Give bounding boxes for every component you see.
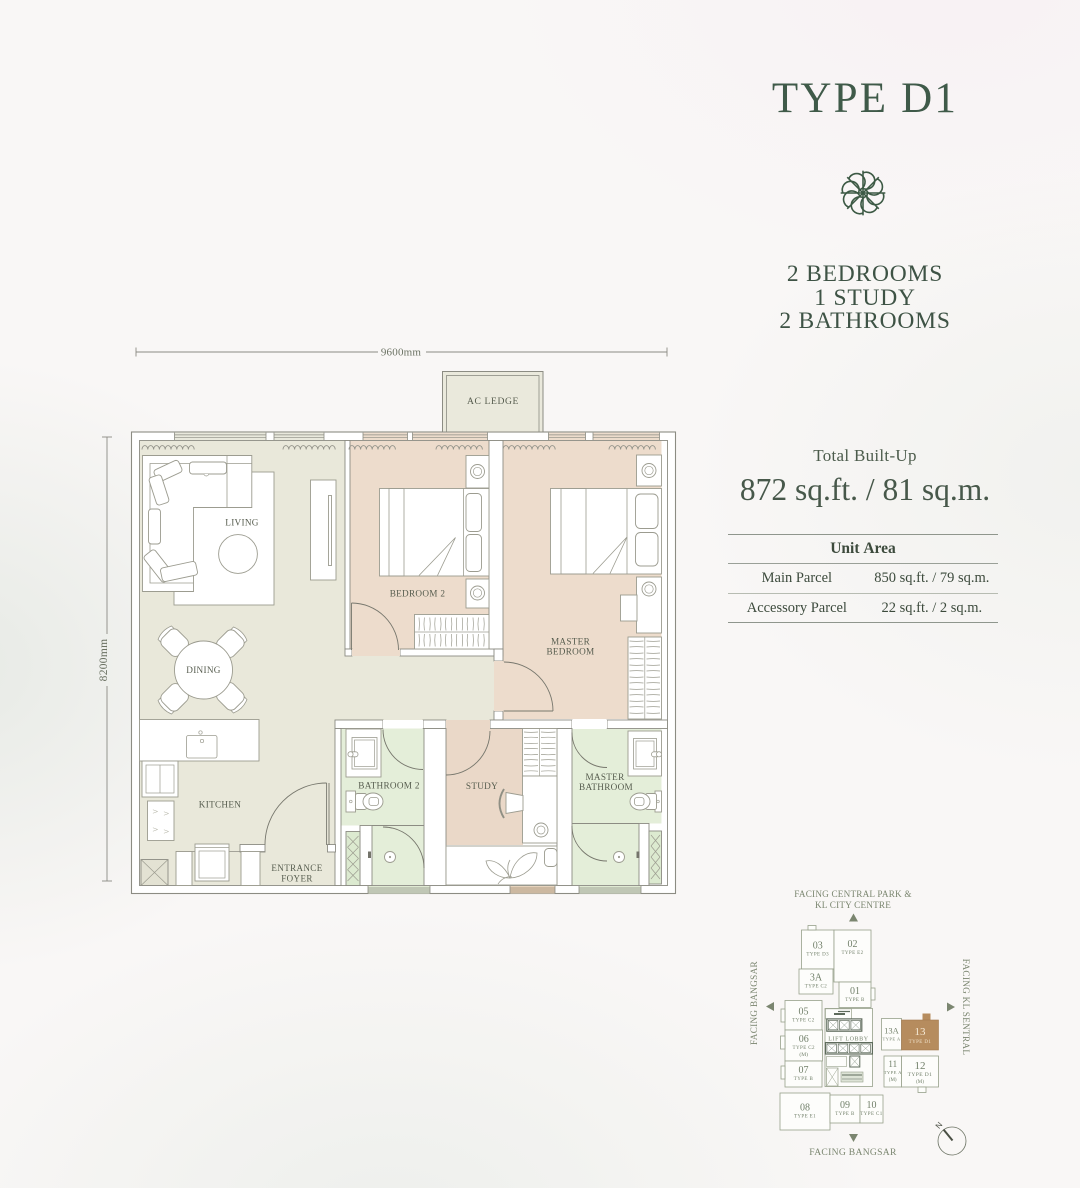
svg-text:KITCHEN: KITCHEN <box>199 800 241 810</box>
svg-text:TYPE C2: TYPE C2 <box>792 1018 814 1023</box>
svg-text:(M): (M) <box>889 1078 897 1083</box>
svg-text:BATHROOM 2: BATHROOM 2 <box>358 781 420 791</box>
svg-text:MASTER: MASTER <box>551 637 591 647</box>
svg-text:LIVING: LIVING <box>225 518 259 528</box>
svg-text:TYPE C2: TYPE C2 <box>793 1046 815 1051</box>
svg-text:TYPE E2: TYPE E2 <box>841 951 863 956</box>
svg-text:05: 05 <box>799 1006 809 1017</box>
svg-text:03: 03 <box>813 941 823 952</box>
svg-text:TYPE D1: TYPE D1 <box>908 1072 933 1078</box>
svg-text:TYPE A: TYPE A <box>884 1070 902 1075</box>
svg-text:TYPE E1: TYPE E1 <box>794 1115 816 1120</box>
svg-text:LIFT LOBBY: LIFT LOBBY <box>828 1037 868 1043</box>
svg-text:MASTER: MASTER <box>585 772 625 782</box>
svg-text:10: 10 <box>867 1100 877 1111</box>
svg-text:AC LEDGE: AC LEDGE <box>467 396 519 407</box>
svg-text:N: N <box>934 1120 945 1130</box>
svg-text:TYPE A: TYPE A <box>882 1036 900 1041</box>
svg-text:BEDROOM 2: BEDROOM 2 <box>390 589 446 599</box>
svg-text:(M): (M) <box>916 1080 924 1085</box>
svg-text:ENTRANCE: ENTRANCE <box>271 863 322 873</box>
svg-text:TYPE C1: TYPE C1 <box>860 1112 882 1117</box>
svg-text:TYPE B: TYPE B <box>845 998 865 1003</box>
svg-text:BEDROOM: BEDROOM <box>546 647 594 657</box>
svg-text:09: 09 <box>840 1100 850 1111</box>
svg-text:13A: 13A <box>884 1025 900 1035</box>
svg-text:FOYER: FOYER <box>281 874 313 884</box>
svg-text:TYPE C2: TYPE C2 <box>805 985 827 990</box>
svg-text:TYPE D3: TYPE D3 <box>806 953 829 958</box>
svg-text:01: 01 <box>850 986 860 997</box>
svg-text:KL CITY CENTRE: KL CITY CENTRE <box>815 900 891 910</box>
svg-text:FACING BANGSAR: FACING BANGSAR <box>809 1147 897 1158</box>
svg-text:BATHROOM: BATHROOM <box>579 782 633 792</box>
svg-text:08: 08 <box>800 1103 810 1114</box>
svg-text:06: 06 <box>799 1034 809 1045</box>
svg-text:TYPE B: TYPE B <box>835 1112 855 1117</box>
svg-text:02: 02 <box>848 939 858 950</box>
svg-text:13: 13 <box>915 1026 927 1038</box>
svg-text:TYPE B: TYPE B <box>794 1077 814 1082</box>
svg-text:9600mm: 9600mm <box>381 347 422 359</box>
svg-text:8200mm: 8200mm <box>98 639 110 682</box>
svg-text:FACING KL SENTRAL: FACING KL SENTRAL <box>961 959 971 1056</box>
svg-text:STUDY: STUDY <box>466 781 498 791</box>
svg-text:TYPE D1: TYPE D1 <box>909 1040 932 1045</box>
svg-text:FACING BANGSAR: FACING BANGSAR <box>749 960 759 1044</box>
svg-text:11: 11 <box>888 1059 897 1069</box>
svg-text:DINING: DINING <box>186 665 221 675</box>
svg-text:3A: 3A <box>810 973 823 984</box>
svg-text:07: 07 <box>799 1065 809 1076</box>
svg-text:FACING CENTRAL PARK &: FACING CENTRAL PARK & <box>794 889 911 899</box>
svg-text:(M): (M) <box>799 1051 808 1058</box>
svg-text:12: 12 <box>915 1060 926 1072</box>
